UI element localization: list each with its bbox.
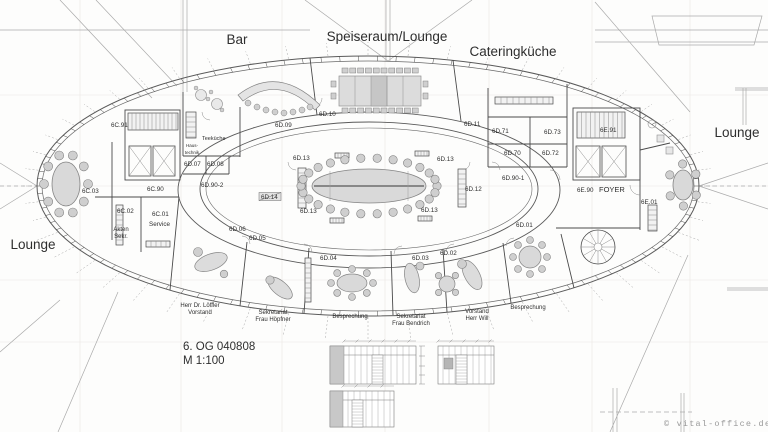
facade-mullion-tick xyxy=(652,247,656,249)
radial-axis-tick xyxy=(641,104,652,111)
room-name-label: Besprechung xyxy=(510,305,545,311)
spiral-stair-step xyxy=(600,250,607,261)
facade-mullion-tick xyxy=(151,88,154,92)
radial-axis-tick xyxy=(242,308,251,330)
kitchen-counter xyxy=(495,97,553,104)
facade-mullion-tick xyxy=(608,98,612,101)
elevation-ladder xyxy=(352,400,363,427)
chair xyxy=(539,242,546,249)
radial-axis-tick xyxy=(662,247,683,258)
chair xyxy=(527,271,534,278)
facade-mullion-tick xyxy=(137,276,140,280)
facade-mullion-tick xyxy=(151,280,154,284)
room-name-line: Sekretariat xyxy=(396,314,425,320)
facade-mullion-tick xyxy=(486,302,488,307)
spiral-stair-step xyxy=(583,239,594,246)
room-name-line: Vorstand xyxy=(188,310,212,316)
facade-mullion-tick xyxy=(112,265,116,268)
chair xyxy=(544,254,551,261)
facade-mullion-tick xyxy=(451,60,452,65)
room-code-label: 6D.08 xyxy=(207,161,224,168)
radial-axis-tick xyxy=(447,313,453,336)
facade-mullion-tick xyxy=(692,200,697,201)
chair xyxy=(326,205,334,213)
chair xyxy=(363,289,370,296)
dining-table xyxy=(339,76,421,106)
facade-mullion-tick xyxy=(620,104,624,107)
facade-mullion-tick xyxy=(39,171,44,172)
chair xyxy=(425,195,433,203)
facade-mullion-tick xyxy=(433,309,434,314)
spiral-stair-step xyxy=(583,249,594,256)
room-code-label: 6D.13 xyxy=(293,155,310,162)
room-code-label: 6D.06 xyxy=(229,226,246,233)
chair xyxy=(381,68,387,73)
spiral-stair-core xyxy=(594,243,602,251)
chair xyxy=(331,81,336,87)
room-code-label: 6E.91 xyxy=(600,127,617,134)
chair xyxy=(79,197,88,206)
chair xyxy=(40,180,49,189)
facade-mullion-tick xyxy=(46,214,51,215)
room-name-line: Frau Bendrich xyxy=(392,321,430,327)
chair xyxy=(370,280,377,287)
chair xyxy=(403,159,411,167)
bar-stool xyxy=(299,107,305,113)
facade-mullion-tick xyxy=(668,235,673,237)
chair xyxy=(416,163,424,171)
chair xyxy=(389,108,395,113)
facade-mullion-tick xyxy=(90,254,94,257)
radial-axis-tick xyxy=(84,104,95,111)
radial-axis-tick xyxy=(690,217,703,220)
drawing-title: 6. OG 040808 xyxy=(183,341,255,353)
staircase-east xyxy=(577,112,625,138)
elevation-ladder xyxy=(456,355,467,384)
facade-mullion-tick xyxy=(433,59,434,64)
chair xyxy=(334,270,341,277)
facade-mullion-tick xyxy=(675,142,680,144)
facade-mullion-tick xyxy=(552,289,555,293)
room-code-label: 6D.07 xyxy=(184,161,201,168)
facade-mullion-tick xyxy=(230,68,232,73)
room-code-label: 6C.02 xyxy=(117,208,134,215)
chair xyxy=(365,108,371,113)
room-name-line: Frau Höpfner xyxy=(255,317,290,323)
lounge-table-east xyxy=(673,170,693,200)
chair xyxy=(209,90,213,94)
facade-mullion-tick xyxy=(686,157,691,158)
chair xyxy=(404,68,410,73)
radial-axis-tick xyxy=(447,46,450,59)
facade-mullion-tick xyxy=(248,302,250,307)
spiral-stair-step xyxy=(601,249,612,256)
chair xyxy=(314,163,322,171)
chair xyxy=(403,205,411,213)
watermark: © vital-office.de xyxy=(664,419,768,429)
chair xyxy=(342,68,348,73)
teekueche-counter xyxy=(186,112,196,138)
facade-mullion-tick xyxy=(321,57,322,62)
chair xyxy=(334,289,341,296)
facade-mullion-tick xyxy=(675,228,680,230)
room-name-label: Besprechung xyxy=(332,314,367,320)
chair xyxy=(357,154,365,162)
radial-axis-tick xyxy=(102,273,120,289)
elevator-west-2-x xyxy=(153,146,175,176)
elevation-ladder xyxy=(372,355,383,384)
room-name-line: Herr Dr. Löffler xyxy=(180,303,219,309)
radial-axis-tick xyxy=(139,78,148,88)
facade-mullion-tick xyxy=(124,98,128,101)
facade-mullion-tick xyxy=(80,122,84,124)
radial-axis-tick xyxy=(522,58,528,70)
chair xyxy=(349,294,356,301)
facade-mullion-tick xyxy=(595,276,598,280)
chair xyxy=(435,289,441,295)
chair xyxy=(358,68,364,73)
room-code-label: 6D.05 xyxy=(249,235,266,242)
room-code-label: 6C.03 xyxy=(82,188,99,195)
chair xyxy=(365,68,371,73)
facade-mullion-tick xyxy=(56,228,61,230)
facade-mullion-tick xyxy=(100,259,104,262)
facade-mullion-tick xyxy=(181,79,184,83)
chair xyxy=(44,197,53,206)
room-name-label: SekretariatFrau Bendrich xyxy=(392,314,430,327)
chair xyxy=(666,171,674,179)
facade-mullion-tick xyxy=(661,129,665,131)
room-code-label: 6D.13 xyxy=(421,207,438,214)
facade-mullion-tick xyxy=(642,116,646,119)
radial-axis-tick xyxy=(690,152,703,155)
facade-mullion-tick xyxy=(56,142,61,144)
room-name-line: Akten xyxy=(113,227,128,233)
chair xyxy=(305,169,313,177)
radial-axis-tick xyxy=(662,119,674,125)
floor-plan-drawing: BarSpeiseraum/LoungeCateringkücheLoungeL… xyxy=(0,0,768,432)
radial-axis-tick xyxy=(45,135,57,140)
chair xyxy=(357,210,365,218)
chair xyxy=(404,108,410,113)
chair xyxy=(515,242,522,249)
bar-stool xyxy=(245,100,251,106)
facade-mullion-tick xyxy=(42,207,47,208)
radial-axis-tick xyxy=(588,78,597,88)
cafe-table xyxy=(196,90,207,101)
chair xyxy=(349,266,356,273)
drawing-scale: M 1:100 xyxy=(183,355,225,367)
room-code-label: 6D.03 xyxy=(412,255,429,262)
elevator-east-2-x xyxy=(602,146,626,177)
facade-mullion-tick xyxy=(642,254,646,257)
room-code-label: 6D.04 xyxy=(320,255,337,262)
facade-mullion-tick xyxy=(681,221,686,222)
radial-axis-tick xyxy=(326,43,328,56)
facade-mullion-tick xyxy=(50,221,55,222)
chair xyxy=(350,108,356,113)
detail-elevations xyxy=(330,340,494,428)
facade-mullion-tick xyxy=(661,241,665,243)
facade-mullion-tick xyxy=(39,200,44,201)
radial-axis-tick xyxy=(617,273,635,289)
room-code-label: 6D.90-2 xyxy=(201,182,224,189)
facade-mullion-tick xyxy=(284,60,285,65)
room-code-label: 6D.90-1 xyxy=(502,175,525,182)
radial-axis-tick xyxy=(698,202,711,204)
chair xyxy=(423,81,428,87)
room-name-line: Haus- xyxy=(186,143,199,148)
conference-table xyxy=(312,169,426,203)
chair xyxy=(389,208,397,216)
room-name-label: Herr Dr. LöfflerVorstand xyxy=(180,303,219,316)
chair xyxy=(435,272,441,278)
elevation-panel xyxy=(330,391,343,427)
chair xyxy=(389,156,397,164)
chair xyxy=(423,93,428,99)
chair xyxy=(363,270,370,277)
facade-mullion-tick xyxy=(567,83,570,87)
chair xyxy=(331,93,336,99)
chair xyxy=(55,151,64,160)
spiral-stair-step xyxy=(590,250,597,261)
facade-mullion-tick xyxy=(567,285,570,289)
sideboard-6D04 xyxy=(305,258,311,302)
facade-mullion-tick xyxy=(166,285,169,289)
chair xyxy=(206,97,210,101)
radial-axis-tick xyxy=(285,46,288,59)
area-label: Speiseraum/Lounge xyxy=(327,29,448,44)
chair xyxy=(452,272,458,278)
room-name-label: AktenSekr. xyxy=(113,227,128,240)
bar-stool xyxy=(272,109,278,115)
room-code-label: 6D.73 xyxy=(544,129,561,136)
facade-mullion-tick xyxy=(552,79,555,83)
facade-mullion-tick xyxy=(595,93,598,97)
radial-axis-tick xyxy=(588,284,604,302)
facade-mullion-tick xyxy=(536,293,539,297)
bar-stool xyxy=(290,109,296,115)
room-code-label: 6C.91 xyxy=(111,122,128,129)
radial-axis-tick xyxy=(63,119,75,125)
elevator-east-1-x xyxy=(576,146,600,177)
room-code-label: 6C.01 xyxy=(152,211,169,218)
room-code-label: 6D.02 xyxy=(440,250,457,257)
facade-mullion-tick xyxy=(620,265,624,268)
radial-axis-tick xyxy=(208,58,214,70)
facade-mullion-tick xyxy=(181,289,184,293)
room-code-label: 6D.71 xyxy=(492,128,509,135)
room-code-label: Teeküche xyxy=(202,136,226,142)
team-table-6D03 xyxy=(439,276,455,292)
staircase-west xyxy=(128,113,178,130)
spiral-stair-step xyxy=(601,239,612,246)
chair xyxy=(328,280,335,287)
chair xyxy=(412,68,418,73)
chair xyxy=(373,154,381,162)
facade-mullion-tick xyxy=(214,71,216,75)
radial-axis-tick xyxy=(26,202,39,204)
area-label: Bar xyxy=(226,32,248,47)
chair xyxy=(326,159,334,167)
facade-mullion-tick xyxy=(46,157,51,158)
facade-mullion-tick xyxy=(503,68,505,73)
chair xyxy=(342,108,348,113)
elevation-panel xyxy=(330,346,344,384)
chair xyxy=(68,208,77,217)
facade-mullion-tick xyxy=(214,297,216,301)
chair xyxy=(79,162,88,171)
room-name-line: Herr Will xyxy=(466,316,489,322)
chair xyxy=(358,108,364,113)
chair xyxy=(692,191,700,199)
bar-stool xyxy=(254,104,260,110)
room-code-label: 6D.13 xyxy=(437,156,454,163)
room-code-label: 6D.09 xyxy=(275,122,292,129)
chair xyxy=(389,68,395,73)
radial-axis-tick xyxy=(166,294,180,314)
facade-mullion-tick xyxy=(581,88,584,92)
chair xyxy=(510,254,517,261)
chair xyxy=(373,210,381,218)
area-label: Lounge xyxy=(714,125,759,140)
lounge-table-west xyxy=(52,162,80,206)
room-name-label: VorstandHerr Will xyxy=(465,309,489,322)
bar-stool xyxy=(307,104,313,110)
facade-mullion-tick xyxy=(536,75,539,79)
room-code-label: 6D.01 xyxy=(516,222,533,229)
facade-mullion-tick xyxy=(266,62,268,67)
room-code-label: 6E.90 xyxy=(577,187,594,194)
chair xyxy=(341,208,349,216)
radial-axis-tick xyxy=(246,51,251,63)
spiral-stair-step xyxy=(600,232,607,243)
elevator-west-1-x xyxy=(129,146,151,176)
facade-mullion-tick xyxy=(248,65,250,70)
facade-mullion-tick xyxy=(503,300,505,305)
chair xyxy=(341,156,349,164)
chair xyxy=(68,151,77,160)
radial-axis-tick xyxy=(698,169,711,171)
facade-mullion-tick xyxy=(686,214,691,215)
shelf-service xyxy=(146,241,170,247)
room-name-line: Sekretariat xyxy=(258,310,287,316)
room-code-label: 6D.12 xyxy=(465,186,482,193)
radial-axis-tick xyxy=(75,260,95,274)
facade-mullion-tick xyxy=(50,149,55,150)
facade-mullion-tick xyxy=(166,83,169,87)
room-name-label: Haus-technik xyxy=(185,143,200,155)
room-name-label: SekretariatFrau Höpfner xyxy=(255,310,290,323)
radial-axis-tick xyxy=(172,67,179,78)
chair xyxy=(692,170,700,178)
room-code-label: 6C.90 xyxy=(147,186,164,193)
facade-mullion-tick xyxy=(486,65,488,70)
chair xyxy=(679,202,687,210)
chair xyxy=(397,108,403,113)
room-name-line: technik xyxy=(185,150,200,155)
radial-axis-tick xyxy=(53,247,74,258)
bar-stool xyxy=(263,107,269,113)
radial-axis-tick xyxy=(325,316,328,340)
chair xyxy=(527,237,534,244)
radial-axis-tick xyxy=(33,217,46,220)
facade-mullion-tick xyxy=(137,93,140,97)
radial-axis-tick xyxy=(678,232,700,241)
facade-mullion-tick xyxy=(197,293,200,297)
radial-axis-tick xyxy=(557,67,564,78)
facade-mullion-tick xyxy=(63,135,68,137)
floor-plan-canvas: BarSpeiseraum/LoungeCateringkücheLoungeL… xyxy=(0,0,768,432)
radial-axis-tick xyxy=(408,43,410,56)
radial-axis-tick xyxy=(33,152,46,155)
chair xyxy=(431,175,439,183)
room-code-label: 6D.13 xyxy=(300,208,317,215)
chair xyxy=(44,162,53,171)
spiral-stair-step xyxy=(590,232,597,243)
radial-axis-tick xyxy=(557,294,571,314)
room-name-line: Besprechung xyxy=(332,314,367,320)
facade-mullion-tick xyxy=(71,241,75,243)
meeting-table-6D04 xyxy=(337,274,367,292)
elevation-appliance xyxy=(444,358,453,369)
chair xyxy=(539,266,546,273)
chair xyxy=(666,192,674,200)
chair xyxy=(397,68,403,73)
room-code-label: 6D.70 xyxy=(504,150,521,157)
chair xyxy=(515,266,522,273)
room-code-label: FOYER xyxy=(599,185,625,194)
facade-mullion-tick xyxy=(266,305,268,310)
facade-mullion-tick xyxy=(80,247,84,249)
area-label: Cateringküche xyxy=(469,44,556,59)
facade-mullion-tick xyxy=(632,259,636,262)
facade-mullion-tick xyxy=(71,129,75,131)
room-code-label: 6D.72 xyxy=(542,150,559,157)
facade-mullion-tick xyxy=(321,310,322,315)
room-code-label: 6E.01 xyxy=(641,199,658,206)
room-name-line: Sekr. xyxy=(114,234,128,240)
facade-mullion-tick xyxy=(520,297,522,301)
chair xyxy=(381,108,387,113)
room-code-label: 6D.14 xyxy=(261,194,278,201)
desk-chairs xyxy=(194,248,467,285)
chair xyxy=(194,86,198,90)
facade-mullion-tick xyxy=(230,300,232,305)
facade-mullion-tick xyxy=(197,75,200,79)
facade-mullion-tick xyxy=(302,309,303,314)
cafe-table xyxy=(212,99,223,110)
facade-mullion-tick xyxy=(451,307,452,312)
radial-axis-tick xyxy=(678,135,690,140)
chair xyxy=(373,108,379,113)
radial-axis-tick xyxy=(641,260,661,274)
facade-mullion-tick xyxy=(63,235,68,237)
room-name-line: Vorstand xyxy=(465,309,489,315)
facade-mullion-tick xyxy=(520,71,522,75)
radial-axis-tick xyxy=(26,169,39,171)
chair xyxy=(452,289,458,295)
area-label: Lounge xyxy=(10,237,55,252)
facade-mullion-tick xyxy=(302,59,303,64)
shelf-6E01 xyxy=(648,205,657,231)
facade-mullion-tick xyxy=(414,57,415,62)
chair xyxy=(350,68,356,73)
chair xyxy=(55,208,64,217)
room-code-label: 6D.10 xyxy=(319,111,336,118)
facade-mullion-tick xyxy=(681,149,686,150)
chair xyxy=(220,108,224,112)
